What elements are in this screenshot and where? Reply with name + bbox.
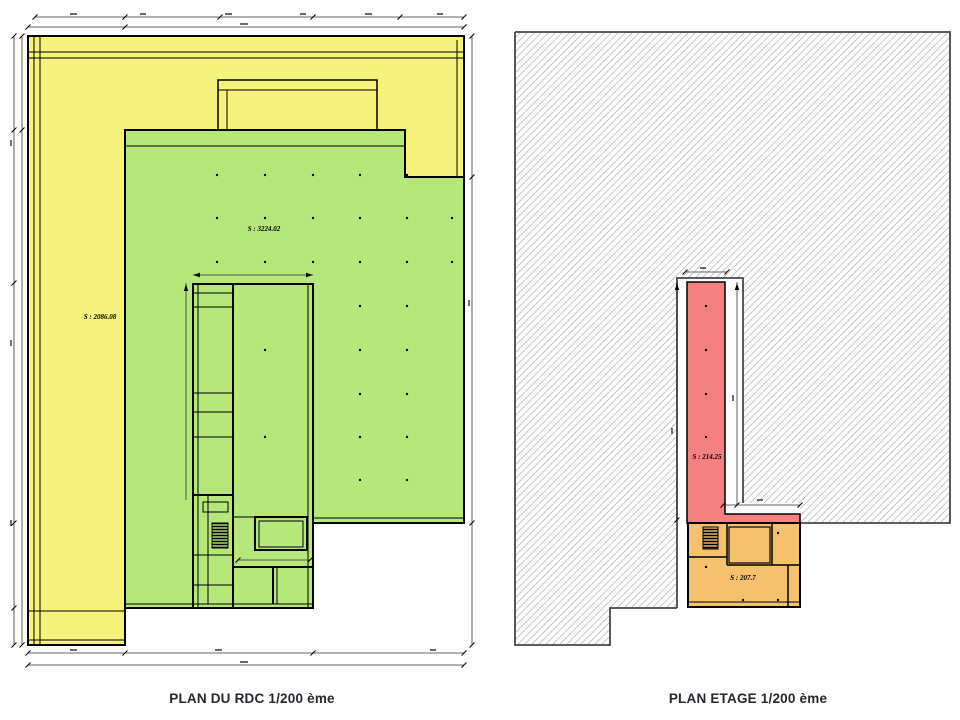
floor-plan-sheet: S : 2086.08 S : 3224.02 S : 214.25 S : 2… [0, 0, 960, 720]
rdc-caption: PLAN DU RDC 1/200 ème [169, 691, 335, 706]
etage-hatch-left [515, 278, 677, 608]
etage-staircase [703, 527, 718, 549]
plan-rdc: S : 2086.08 S : 3224.02 [11, 14, 475, 668]
rdc-yellow-area-label: S : 2086.08 [84, 313, 117, 321]
plans-drawing: S : 2086.08 S : 3224.02 S : 214.25 S : 2… [0, 0, 960, 720]
rdc-green-zone [125, 130, 464, 608]
etage-hatch-top [515, 32, 950, 278]
rdc-staircase [212, 523, 228, 548]
etage-hatch-right [743, 278, 950, 523]
etage-hatch-foot [515, 608, 610, 645]
plan-etage: S : 214.25 S : 207.7 [515, 32, 950, 645]
rdc-green-area-label: S : 3224.02 [248, 225, 281, 233]
etage-red-area-label: S : 214.25 [693, 453, 722, 461]
etage-orange-area-label: S : 207.7 [730, 574, 756, 582]
etage-caption: PLAN ETAGE 1/200 ème [669, 691, 828, 706]
